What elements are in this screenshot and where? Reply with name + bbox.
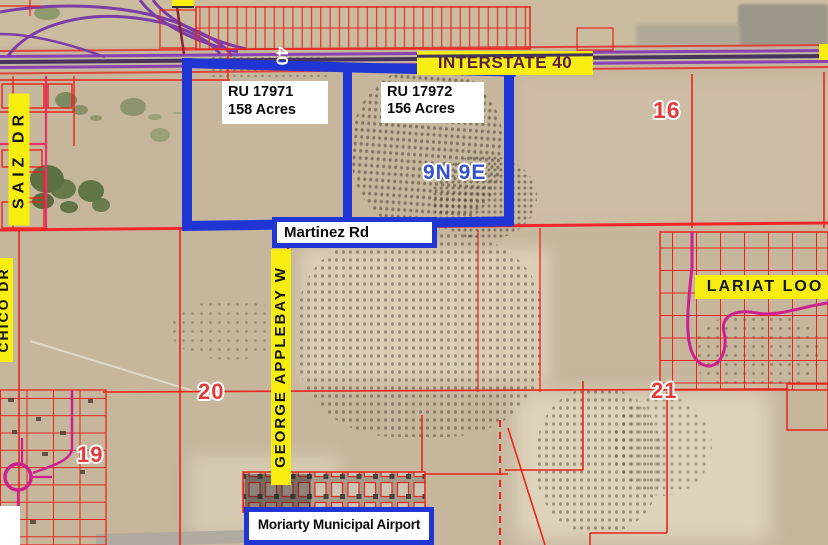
- section-19-label: 19: [77, 442, 103, 468]
- parcel-acres: 158 Acres: [228, 101, 328, 119]
- george-applebay-label: GEORGE APPLEBAY W: [271, 249, 291, 485]
- airport-parcel-lines: [422, 415, 545, 545]
- parcel-label-ru17972: RU 17972 156 Acres: [381, 82, 484, 123]
- saiz-dr-label: SAIZ DR: [9, 94, 30, 226]
- parcel-outline-left: [182, 58, 192, 230]
- parcel-id: RU 17971: [228, 83, 328, 101]
- cutoff-label-box-bottomleft: [0, 506, 20, 545]
- airport-label: Moriarty Municipal Airport: [244, 507, 434, 545]
- township-label: 9N 9E: [423, 161, 486, 185]
- cutoff-label-top: [172, 0, 194, 8]
- parcel-outline-right: [504, 74, 514, 224]
- section-20-label: 20: [198, 379, 224, 405]
- section-16-label: 16: [653, 97, 681, 124]
- parcel-label-ru17971: RU 17971 158 Acres: [222, 81, 328, 124]
- parcel-outline-divider: [343, 66, 352, 230]
- cutoff-label-right: [819, 44, 828, 60]
- map-canvas[interactable]: INTERSTATE 40 40 RU 17971 158 Acres RU 1…: [0, 0, 828, 545]
- section-21-label: 21: [651, 378, 677, 404]
- chico-dr-label: CHICO DR: [0, 258, 13, 362]
- parcel-acres: 156 Acres: [387, 101, 484, 118]
- left-neighborhood: [0, 50, 230, 230]
- parcel-id: RU 17972: [387, 84, 484, 101]
- martinez-rd-label: Martinez Rd: [272, 217, 437, 248]
- route-40-marker: 40: [271, 47, 291, 66]
- lariat-subdivision: [660, 232, 828, 390]
- lariat-loop-label: LARIAT LOO: [695, 275, 828, 299]
